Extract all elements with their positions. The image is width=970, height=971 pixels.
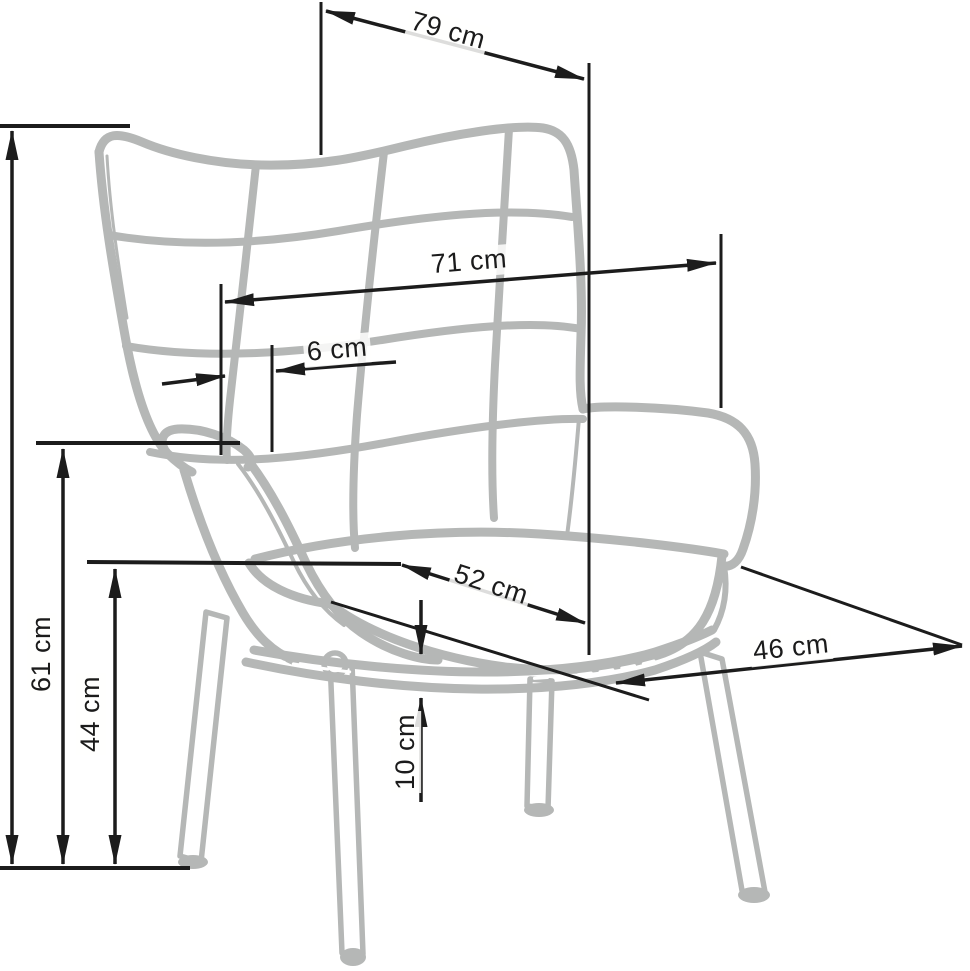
front-right-leg (330, 660, 363, 954)
rear-left-leg (527, 679, 552, 809)
front-left-leg (180, 612, 227, 862)
dim-label-61cm: 61 cm (27, 613, 57, 695)
dim-label-6cm: 6 cm (303, 332, 372, 367)
front-right-foot (340, 948, 366, 966)
dimension-diagram: 79 cm 71 cm 6 cm 52 cm 46 cm 61 cm 44 cm… (0, 0, 970, 971)
rear-right-leg (700, 652, 765, 896)
rear-left-foot (524, 803, 554, 817)
dim-seat-depth (331, 567, 962, 700)
rear-right-foot (738, 887, 770, 903)
seat-reference-line (87, 562, 401, 564)
right-armrest (567, 407, 755, 630)
dim-label-10cm: 10 cm (391, 711, 421, 793)
diagram-canvas (0, 0, 970, 971)
dim-label-44cm: 44 cm (76, 673, 106, 755)
